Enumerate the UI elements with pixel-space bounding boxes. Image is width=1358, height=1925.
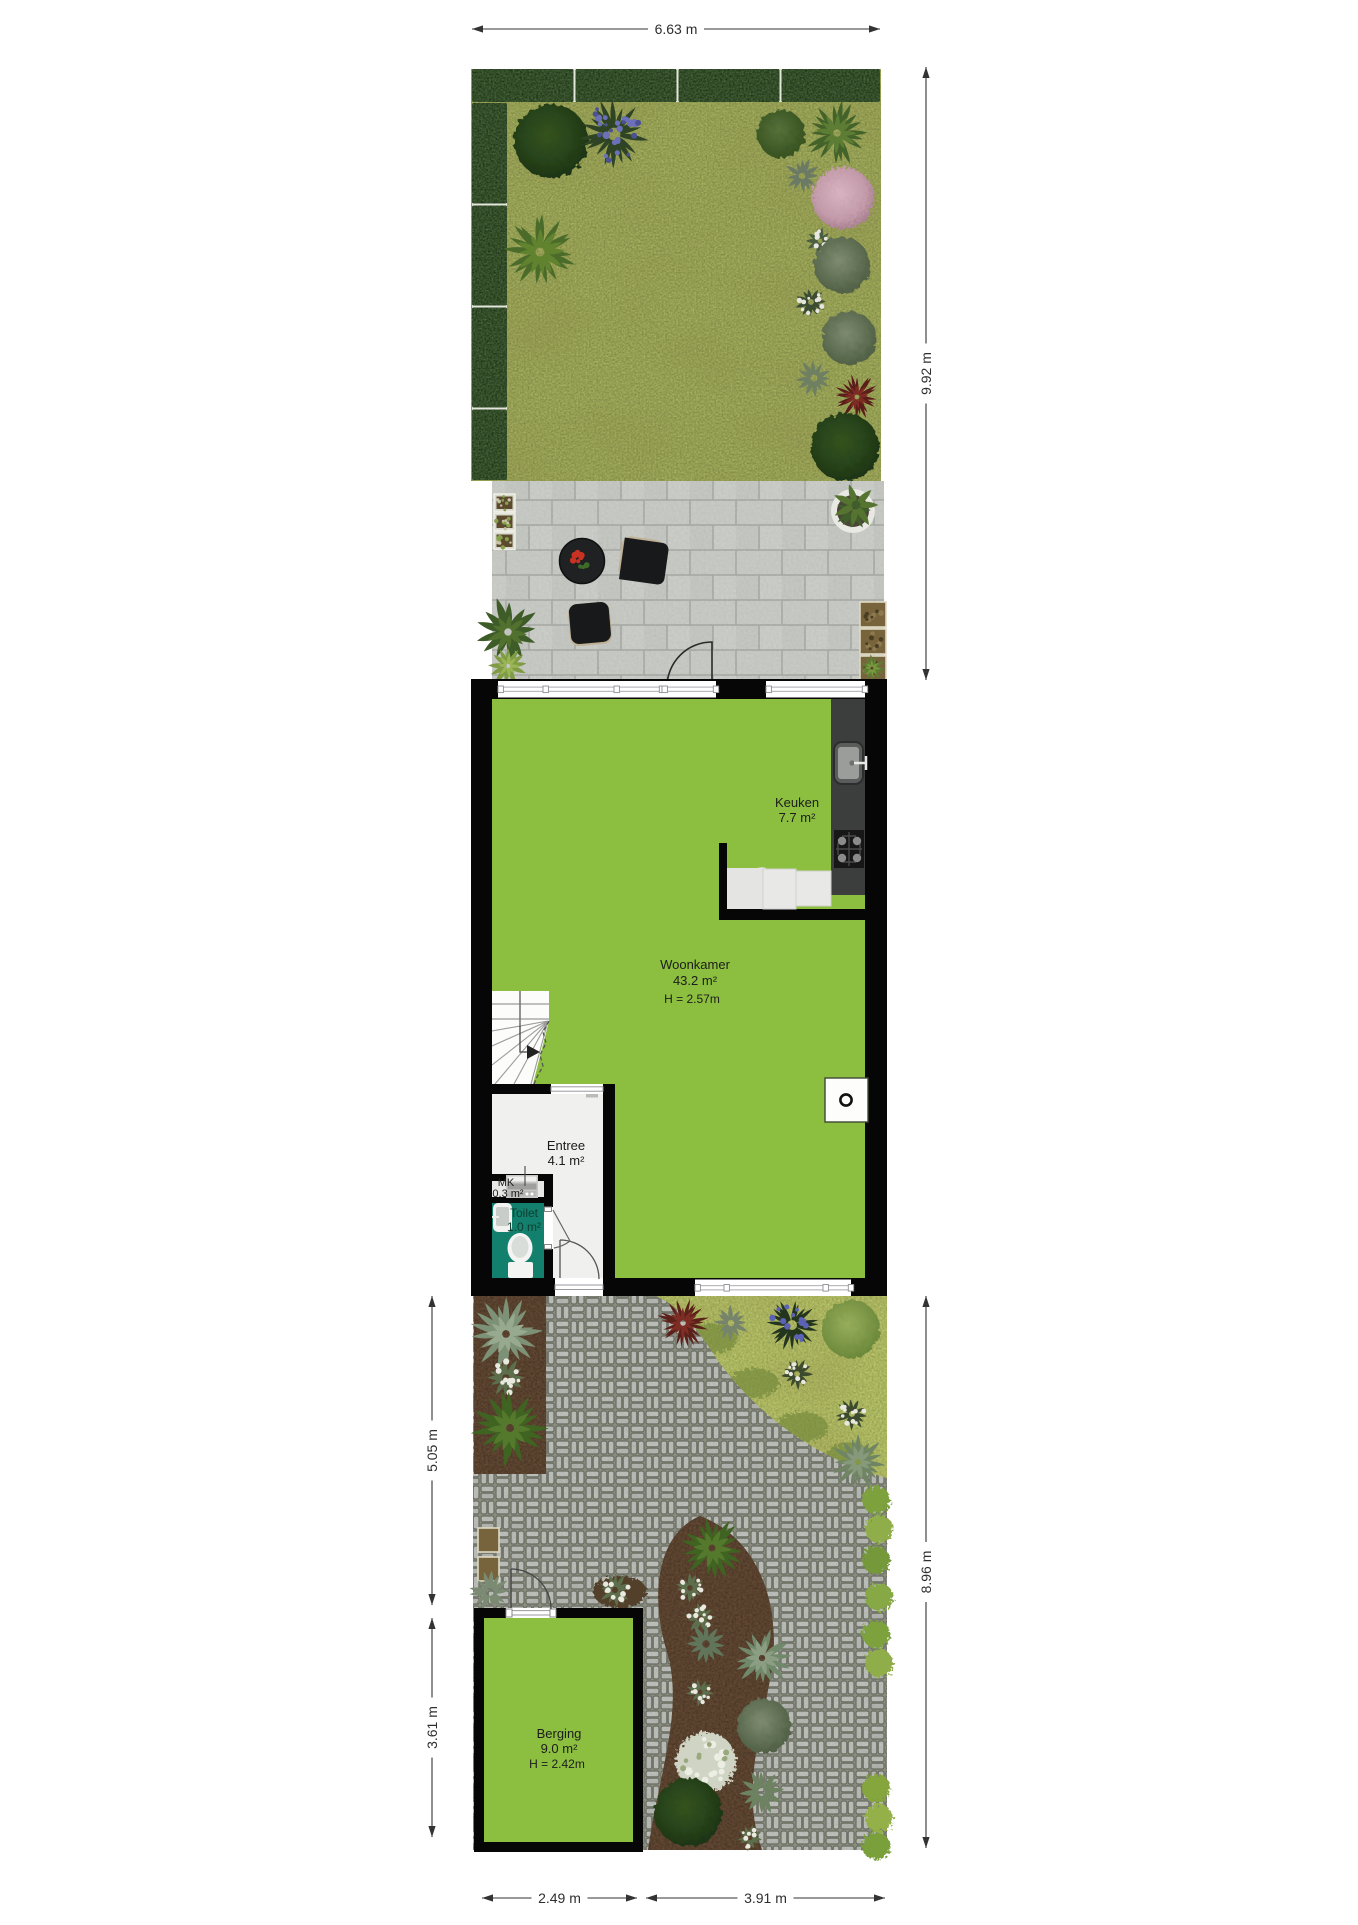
svg-text:Woonkamer: Woonkamer — [660, 957, 731, 972]
svg-text:Berging: Berging — [537, 1726, 582, 1741]
svg-text:0.3 m²: 0.3 m² — [492, 1188, 524, 1200]
svg-text:7.7 m²: 7.7 m² — [779, 810, 817, 825]
svg-text:8.96 m: 8.96 m — [918, 1551, 934, 1594]
svg-text:5.05 m: 5.05 m — [424, 1429, 440, 1472]
svg-text:Toilet: Toilet — [510, 1206, 539, 1220]
svg-text:4.1 m²: 4.1 m² — [548, 1153, 586, 1168]
svg-text:H = 2.57m: H = 2.57m — [664, 992, 720, 1006]
svg-text:Entree: Entree — [547, 1138, 585, 1153]
svg-text:6.63 m: 6.63 m — [655, 21, 698, 37]
svg-text:Keuken: Keuken — [775, 795, 819, 810]
svg-text:1.0 m²: 1.0 m² — [507, 1220, 541, 1234]
svg-text:H = 2.42m: H = 2.42m — [529, 1757, 585, 1771]
svg-text:3.61 m: 3.61 m — [424, 1706, 440, 1749]
svg-text:43.2 m²: 43.2 m² — [673, 973, 718, 988]
svg-text:3.91 m: 3.91 m — [744, 1890, 787, 1906]
svg-text:9.0 m²: 9.0 m² — [541, 1741, 579, 1756]
svg-text:9.92 m: 9.92 m — [918, 352, 934, 395]
svg-text:2.49 m: 2.49 m — [538, 1890, 581, 1906]
